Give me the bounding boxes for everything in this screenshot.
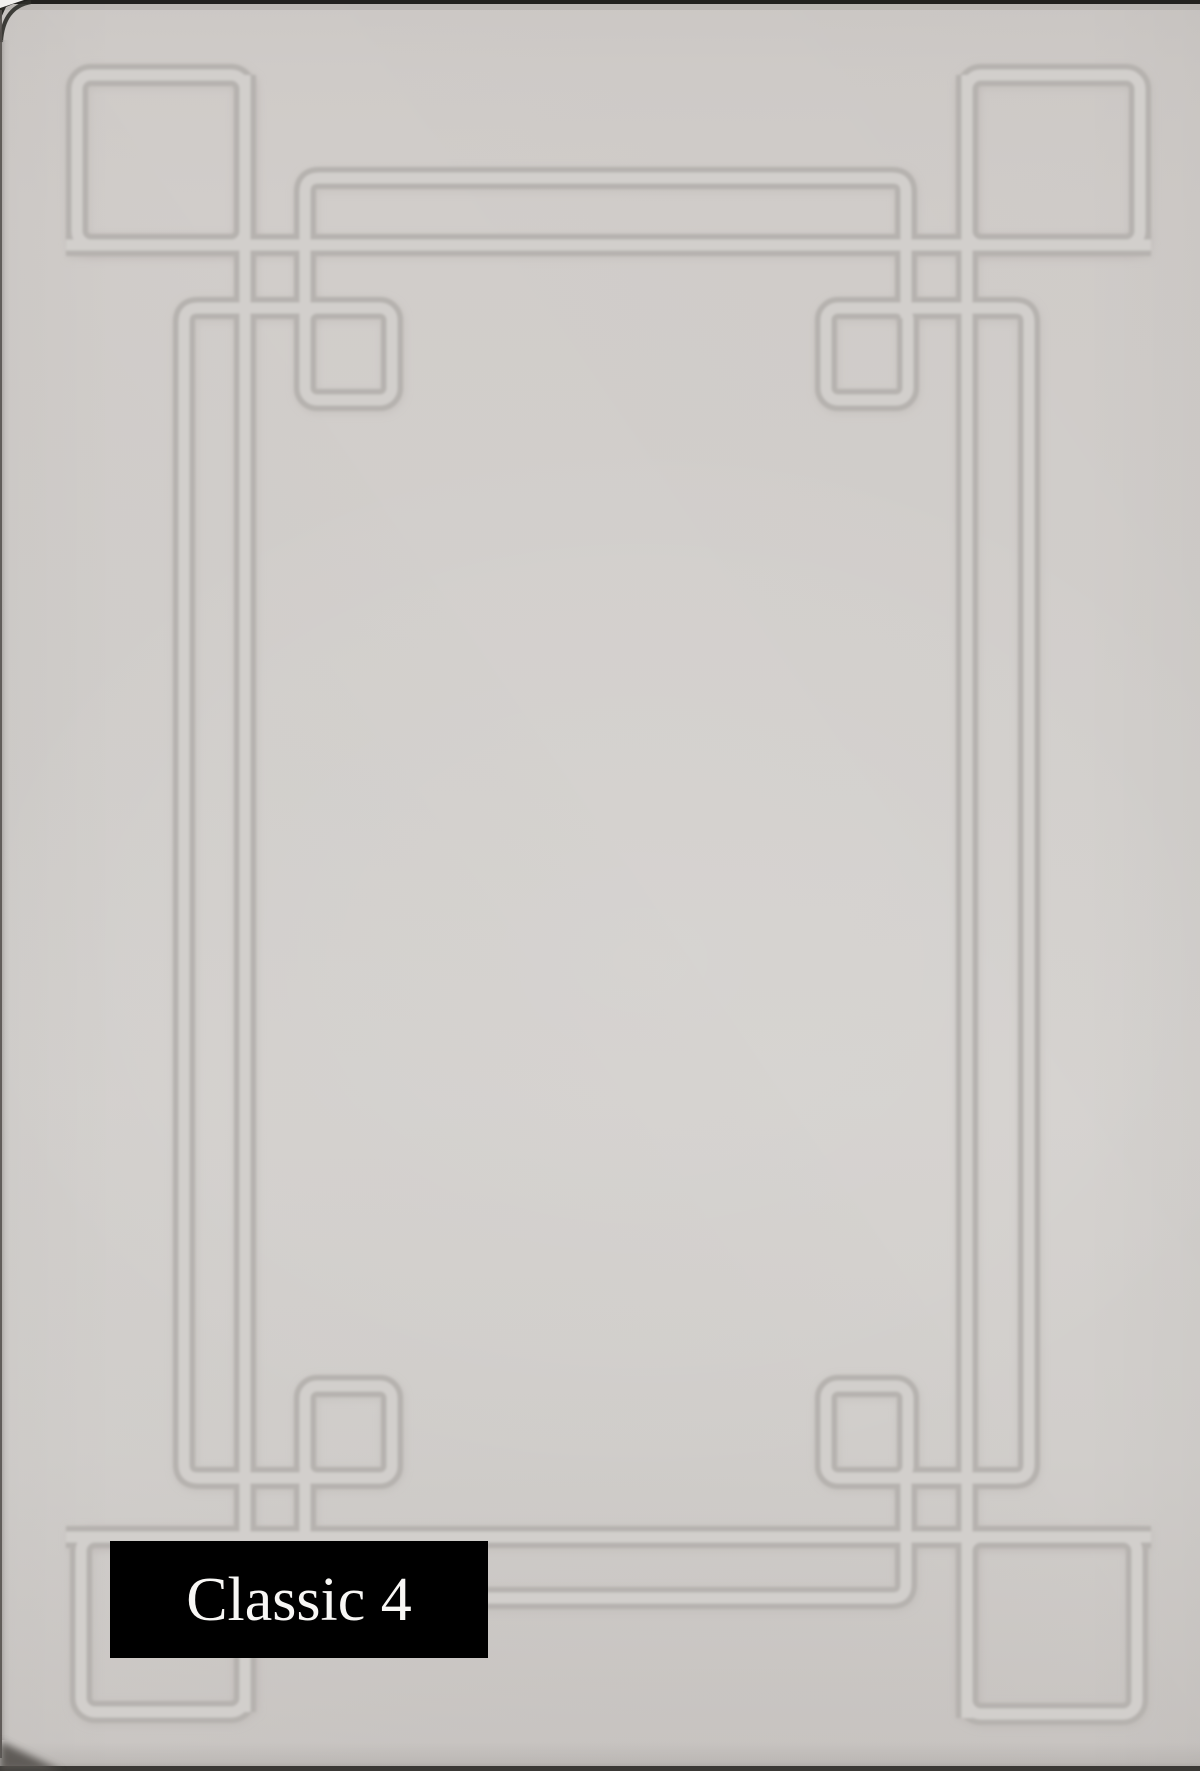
svg-text:Classic 4: Classic 4 — [186, 1566, 412, 1634]
